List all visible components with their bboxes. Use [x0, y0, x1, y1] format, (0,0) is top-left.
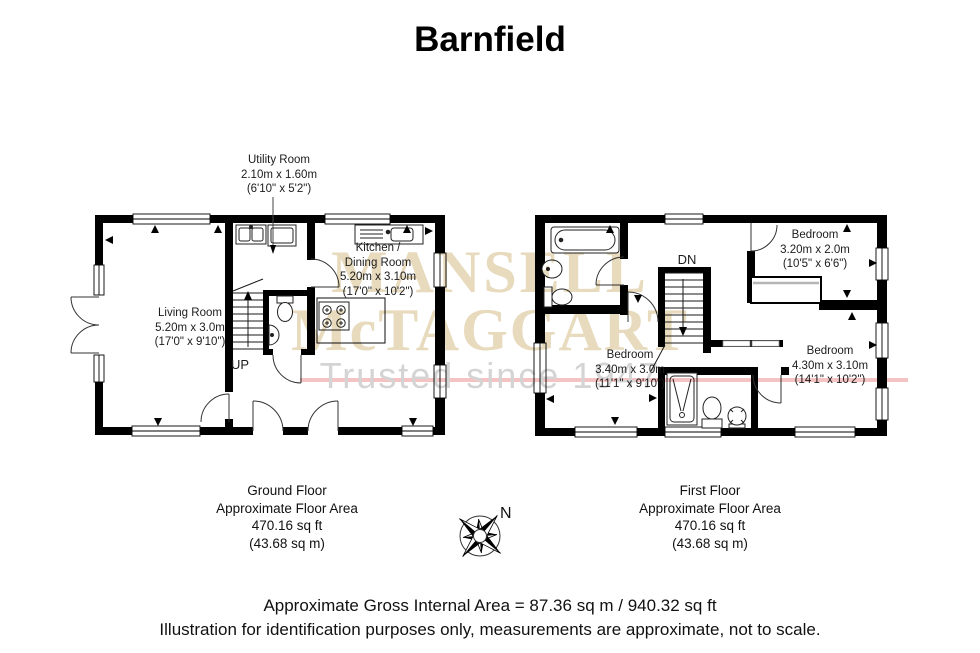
ff-caption-subtitle: Approximate Floor Area — [610, 500, 810, 518]
gf-utility-sink — [236, 225, 266, 244]
gf-kitchen-island — [317, 298, 385, 343]
kitchen-metric: 5.20m x 3.10m — [313, 270, 443, 285]
gf-washer — [268, 225, 296, 246]
first-floor-caption: First Floor Approximate Floor Area 470.1… — [610, 482, 810, 552]
utility-room-label: Utility Room 2.10m x 1.60m (6'10" x 5'2"… — [214, 153, 344, 197]
ff-caption-title: First Floor — [610, 482, 810, 500]
gf-wc-toilet — [277, 296, 293, 322]
bedroom-top-metric: 3.20m x 2.0m — [750, 243, 880, 258]
ff-stairs-down-arrow — [679, 327, 687, 336]
kitchen-imperial: (17'0" x 10'2") — [313, 285, 443, 300]
gf-caption-title: Ground Floor — [187, 482, 387, 500]
ff-wardrobe — [751, 277, 821, 303]
gf-stairs-up-arrow — [244, 291, 252, 300]
ground-floor-plan — [55, 195, 465, 460]
bedroom-right-metric: 4.30m x 3.10m — [765, 359, 895, 374]
living-room-label: Living Room 5.20m x 3.0m (17'0" x 9'10") — [125, 306, 255, 350]
gf-stairs-label: UP — [220, 357, 260, 372]
ground-floor-caption: Ground Floor Approximate Floor Area 470.… — [187, 482, 387, 552]
page-title: Barnfield — [0, 20, 980, 60]
bedroom-top-label: Bedroom 3.20m x 2.0m (10'5" x 6'6") — [750, 228, 880, 272]
kitchen-name-line1: Kitchen / — [313, 241, 443, 256]
bedroom-left-metric: 3.40m x 3.0m — [560, 363, 700, 378]
utility-room-metric: 2.10m x 1.60m — [214, 168, 344, 183]
living-room-imperial: (17'0" x 9'10") — [125, 335, 255, 350]
ff-shower-toilet — [702, 397, 722, 428]
gf-caption-subtitle: Approximate Floor Area — [187, 500, 387, 518]
bedroom-left-label: Bedroom 3.40m x 3.0m (11'1" x 9'10") — [560, 348, 700, 392]
bedroom-right-label: Bedroom 4.30m x 3.10m (14'1" x 10'2") — [765, 344, 895, 388]
footer-disclaimer: Illustration for identification purposes… — [0, 620, 980, 640]
ff-stairs-label: DN — [667, 252, 707, 267]
kitchen-dining-label: Kitchen / Dining Room 5.20m x 3.10m (17'… — [313, 241, 443, 299]
utility-room-imperial: (6'10" x 5'2") — [214, 182, 344, 197]
bedroom-top-imperial: (10'5" x 6'6") — [750, 257, 880, 272]
ff-shower-sink — [728, 407, 746, 428]
ff-bathroom-toilet — [544, 287, 572, 307]
ff-caption-area-m: (43.68 sq m) — [610, 535, 810, 553]
bedroom-left-name: Bedroom — [560, 348, 700, 363]
bedroom-left-imperial: (11'1" x 9'10") — [560, 377, 700, 392]
bedroom-right-imperial: (14'1" x 10'2") — [765, 373, 895, 388]
kitchen-name-line2: Dining Room — [313, 256, 443, 271]
utility-room-name: Utility Room — [214, 153, 344, 168]
floorplan-page: Barnfield — [0, 0, 980, 653]
gf-wc-sink — [269, 325, 279, 345]
bedroom-right-name: Bedroom — [765, 344, 895, 359]
gf-caption-area-ft: 470.16 sq ft — [187, 517, 387, 535]
ff-bathroom-sink — [542, 260, 562, 278]
bedroom-top-name: Bedroom — [750, 228, 880, 243]
footer-gross-area: Approximate Gross Internal Area = 87.36 … — [0, 596, 980, 616]
compass-rose-icon: N — [440, 498, 520, 574]
living-room-name: Living Room — [125, 306, 255, 321]
compass-north-label: N — [500, 505, 512, 522]
ff-caption-area-ft: 470.16 sq ft — [610, 517, 810, 535]
gf-caption-area-m: (43.68 sq m) — [187, 535, 387, 553]
living-room-metric: 5.20m x 3.0m — [125, 321, 255, 336]
